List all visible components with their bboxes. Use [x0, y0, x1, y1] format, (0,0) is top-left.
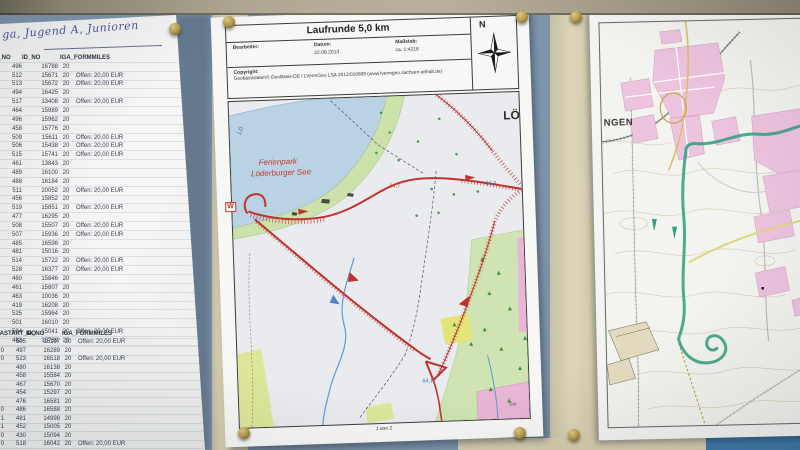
elevation-label: 64,7 — [389, 183, 400, 189]
bulletin-board-photo: ga, Jugend A, Junioren ART_NOID_NOIGA_FO… — [0, 0, 800, 450]
table-row: 5011601020 — [0, 319, 220, 328]
table-row: 14521500520 — [0, 424, 218, 433]
table-row: 4761658120 — [0, 398, 218, 407]
table-row: 5191585120Offen: 20,00 EUR — [0, 204, 220, 213]
table-row: 4801613820 — [0, 364, 218, 373]
place-name-partial: LÖ — [503, 107, 520, 123]
table-row: 5051519720Offen: 20,00 EUR — [0, 339, 218, 348]
table-row: 04861658820 — [0, 407, 218, 416]
table-row: 5141572220Offen: 20,00 EUR — [0, 257, 220, 266]
table-row: 05231651820Offen: 20,00 EUR — [0, 356, 218, 365]
route-map-drawing: Ferienpark Löderburger See LÖ 64,7 64,3 … — [228, 91, 531, 429]
results-sheet: ga, Jugend A, Junioren ART_NOID_NOIGA_FO… — [0, 0, 206, 450]
green-route-arrows — [652, 219, 677, 240]
field-patch — [365, 403, 394, 424]
table-header: ASTART_NOID_NOIGA_FORMMILES — [0, 330, 218, 339]
table-row: 5112005220Offen: 20,00 EUR — [0, 187, 220, 196]
ferienpark-label-1: Ferienpark — [259, 157, 299, 167]
stream — [317, 258, 360, 425]
table-row: 4601584620 — [0, 275, 220, 284]
farm-buildings — [606, 322, 659, 385]
yellow-dashed-path — [679, 343, 705, 424]
route-map-svg: Ferienpark Löderburger See LÖ 64,7 64,3 … — [229, 92, 530, 428]
map-title-block: Laufrunde 5,0 km Bearbeiter: Datum: 22.0… — [225, 15, 519, 99]
settlement-blocks — [751, 107, 800, 317]
wooden-frame-beam — [0, 0, 800, 15]
table-row: 4191620820 — [0, 302, 220, 311]
yellow-road — [688, 218, 800, 263]
table-row: 14811499820 — [0, 415, 218, 424]
table-row: 4581558420 — [0, 373, 218, 382]
meadow-patch — [440, 314, 473, 345]
table-row: 5251596420 — [0, 310, 220, 319]
compass-star-icon — [471, 16, 518, 82]
field-datum: Datum: 22.08.2013 — [308, 37, 390, 64]
landmark-square — [761, 287, 764, 290]
table-row: 4811501620 — [0, 249, 220, 258]
town-name-partial: NGEN — [604, 117, 634, 129]
push-pin — [169, 23, 181, 35]
building — [347, 193, 354, 197]
board-bottom-rail — [458, 438, 708, 450]
field-patch — [237, 349, 274, 428]
table-row: 04971628920 — [0, 347, 218, 356]
route-map-sheet: Laufrunde 5,0 km Bearbeiter: Datum: 22.0… — [211, 7, 544, 448]
track-line — [715, 362, 800, 424]
track-ticks — [715, 362, 800, 424]
topo-map-drawing: NGEN — [598, 18, 800, 429]
field-massstab: Maßstab: ca. 1:4216 — [389, 35, 471, 62]
results-table-2: ASTART_NOID_NOIGA_FORMMILES5051519720Off… — [0, 330, 218, 450]
push-pin — [238, 427, 250, 439]
gst-label: Gst — [509, 401, 517, 406]
elevation-label: 64,1 — [422, 378, 433, 384]
field-bearbeiter: Bearbeiter: — [226, 40, 308, 67]
stream-flow-arrow — [329, 294, 339, 304]
compass-rose: N — [471, 16, 518, 90]
table-row: 4671567020 — [0, 381, 218, 390]
underline-mark — [44, 45, 162, 50]
push-pin — [223, 16, 235, 28]
table-row: 04301509420 — [0, 432, 218, 441]
table-row: 4851659820 — [0, 240, 220, 249]
table-row: 5081550720Offen: 20,00 EUR — [0, 222, 220, 231]
w-marker: W — [225, 202, 236, 212]
elevation-label: 64,3 — [485, 181, 496, 187]
table-row: 4771629520 — [0, 213, 220, 222]
topo-map-svg: NGEN — [599, 19, 800, 428]
table-row: 4631003620 — [0, 293, 220, 302]
north-label: N — [479, 19, 486, 29]
push-pin — [516, 11, 528, 23]
dashed-path — [399, 171, 442, 354]
push-pin — [570, 11, 582, 23]
table-row: 4561585220 — [0, 196, 220, 205]
table-row: 4611580720 — [0, 284, 220, 293]
table-row: 05181604220Offen: 20,00 EUR — [0, 441, 218, 450]
table-row: 4541529720 — [0, 390, 218, 399]
table-row: 5281637720Offen: 20,00 EUR — [0, 266, 220, 275]
handwritten-note: ga, Jugend A, Junioren — [2, 16, 182, 42]
road — [750, 60, 768, 342]
push-pin — [568, 429, 580, 441]
table-row: 5071593620Offen: 20,00 EUR — [0, 231, 220, 240]
topo-map-sheet: NGEN — [589, 6, 800, 441]
push-pin — [514, 427, 526, 439]
